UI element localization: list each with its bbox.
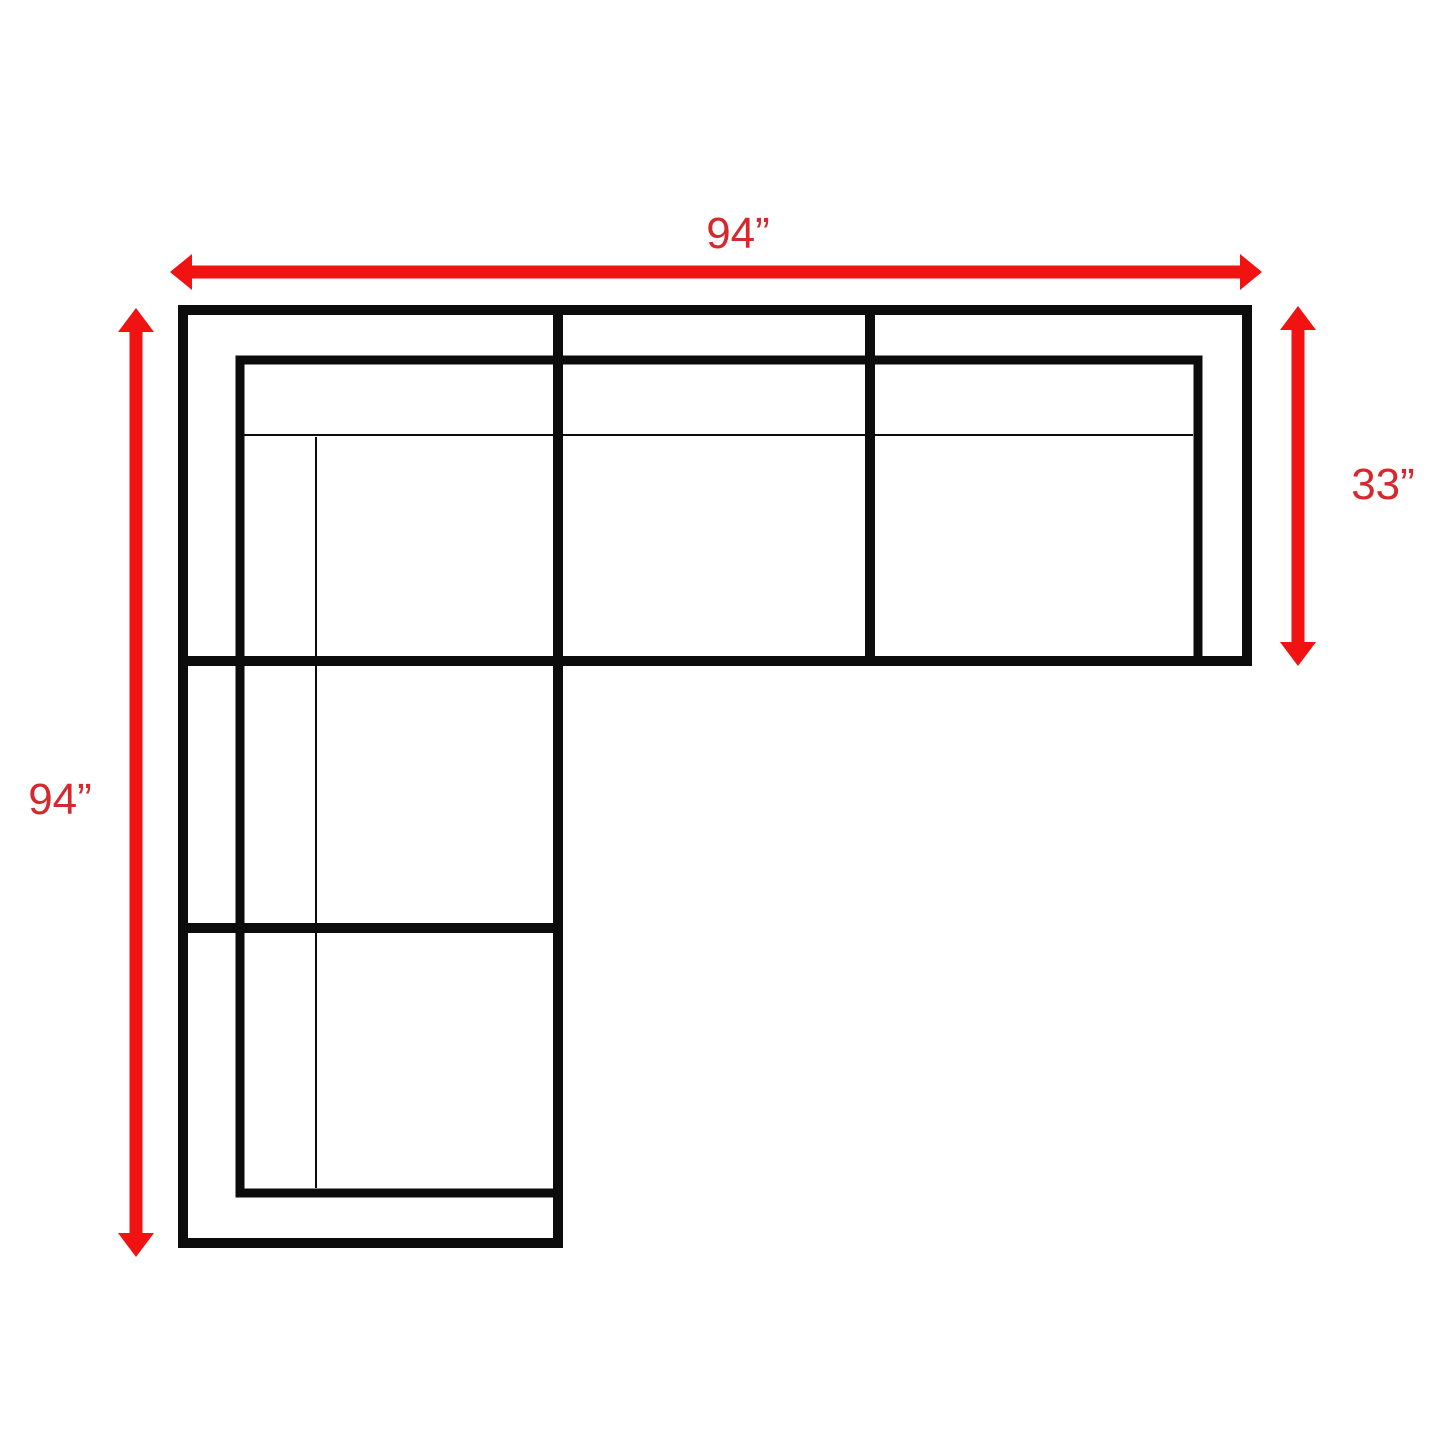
arrowhead-left-icon (170, 254, 192, 290)
sectional-sofa-diagram: 94” 94” 33” (0, 0, 1445, 1445)
arrowhead-down-icon (118, 1233, 154, 1257)
backrest-inner-line (240, 360, 1198, 1193)
dimension-arrow-left-height: 94” (28, 308, 154, 1257)
arrowhead-right-icon (1240, 254, 1262, 290)
section-dividers (183, 310, 870, 928)
dimension-arrow-top-width: 94” (170, 209, 1262, 290)
sofa-outline (178, 305, 1252, 1248)
cushion-edges (244, 435, 1193, 1188)
diagram-canvas: 94” 94” 33” (0, 0, 1445, 1445)
arrowhead-up-icon (1280, 306, 1316, 330)
dimension-label-left-height: 94” (28, 775, 92, 824)
dimension-label-right-depth: 33” (1351, 460, 1415, 509)
dimension-label-top-width: 94” (706, 209, 770, 258)
arrowhead-up-icon (118, 308, 154, 332)
arrowhead-down-icon (1280, 642, 1316, 666)
dimension-arrow-right-depth: 33” (1280, 306, 1415, 666)
